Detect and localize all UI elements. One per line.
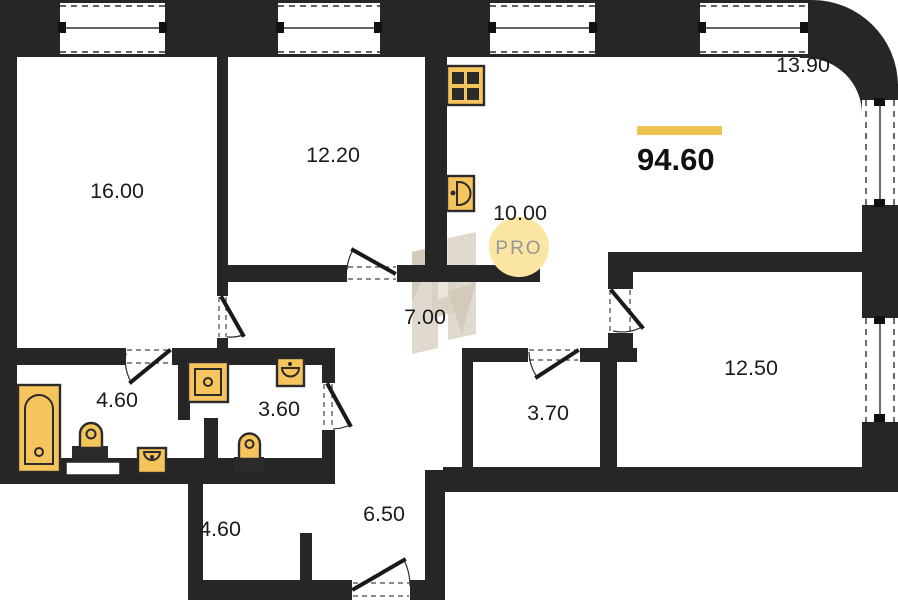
wall xyxy=(217,32,228,278)
window xyxy=(276,3,382,54)
wall xyxy=(204,418,218,460)
window-jamb xyxy=(698,22,706,33)
door-opening xyxy=(347,265,397,282)
room-area-label: 12.20 xyxy=(306,143,360,167)
window-jamb xyxy=(159,22,167,33)
wall xyxy=(443,467,898,492)
wall xyxy=(600,348,617,473)
window-jamb xyxy=(800,22,808,33)
room-area-label: 13.90 xyxy=(776,53,830,77)
room-area-label: 3.70 xyxy=(527,401,569,425)
window-jamb xyxy=(874,98,885,106)
room-area-label: 12.50 xyxy=(724,356,778,380)
stove-burner xyxy=(467,88,479,100)
window xyxy=(698,3,808,54)
stove-burner xyxy=(467,72,479,84)
room-area-label: 6.50 xyxy=(363,502,405,526)
washbasin-drain xyxy=(288,362,292,366)
window xyxy=(862,98,898,207)
room-area-label: 10.00 xyxy=(493,201,547,225)
total-area: 94.60 xyxy=(637,126,722,177)
wall-niche xyxy=(66,462,120,475)
window xyxy=(862,316,898,422)
stove-icon xyxy=(447,66,484,105)
toilet-bowl xyxy=(239,434,260,460)
wall xyxy=(0,0,17,484)
washbasin-icon xyxy=(277,358,304,386)
total-area-label: 94.60 xyxy=(637,142,715,177)
wall xyxy=(300,533,312,581)
bathtub-icon xyxy=(18,385,60,472)
wall xyxy=(608,252,862,272)
window-jamb xyxy=(58,22,66,33)
stove-burner xyxy=(452,72,464,84)
stove-burner xyxy=(452,88,464,100)
accent-bar xyxy=(637,126,722,135)
window-jamb xyxy=(874,316,885,324)
pro-watermark: PRO xyxy=(489,217,549,277)
window xyxy=(58,3,167,54)
kitchen-sink-icon xyxy=(447,176,474,211)
pro-watermark-label: PRO xyxy=(495,238,542,259)
window-jamb xyxy=(276,22,284,33)
washbasin-icon xyxy=(138,448,166,473)
room-area-label: 3.60 xyxy=(258,397,300,421)
wall xyxy=(462,348,473,473)
room-area-label: 16.00 xyxy=(90,179,144,203)
sink-drain xyxy=(451,191,456,196)
wall xyxy=(425,470,445,582)
window-jamb xyxy=(488,22,496,33)
window-jamb xyxy=(374,22,382,33)
wall xyxy=(425,32,447,282)
room-area-label: 4.60 xyxy=(96,388,138,412)
room-area-label: 7.00 xyxy=(404,305,446,329)
washing-machine-icon xyxy=(188,362,228,402)
window-jamb xyxy=(589,22,597,33)
washbasin-drain xyxy=(150,455,154,459)
room-area-label: 4.60 xyxy=(199,517,241,541)
window-jamb xyxy=(874,414,885,422)
window xyxy=(488,3,597,54)
floor-plan-canvas: PRO 94.60 16.00 12.20 13.90 10.00 7.00 4… xyxy=(0,0,898,600)
toilet-bowl xyxy=(80,423,102,448)
window-jamb xyxy=(874,199,885,207)
floor-plan: PRO 94.60 16.00 12.20 13.90 10.00 7.00 4… xyxy=(0,0,898,600)
